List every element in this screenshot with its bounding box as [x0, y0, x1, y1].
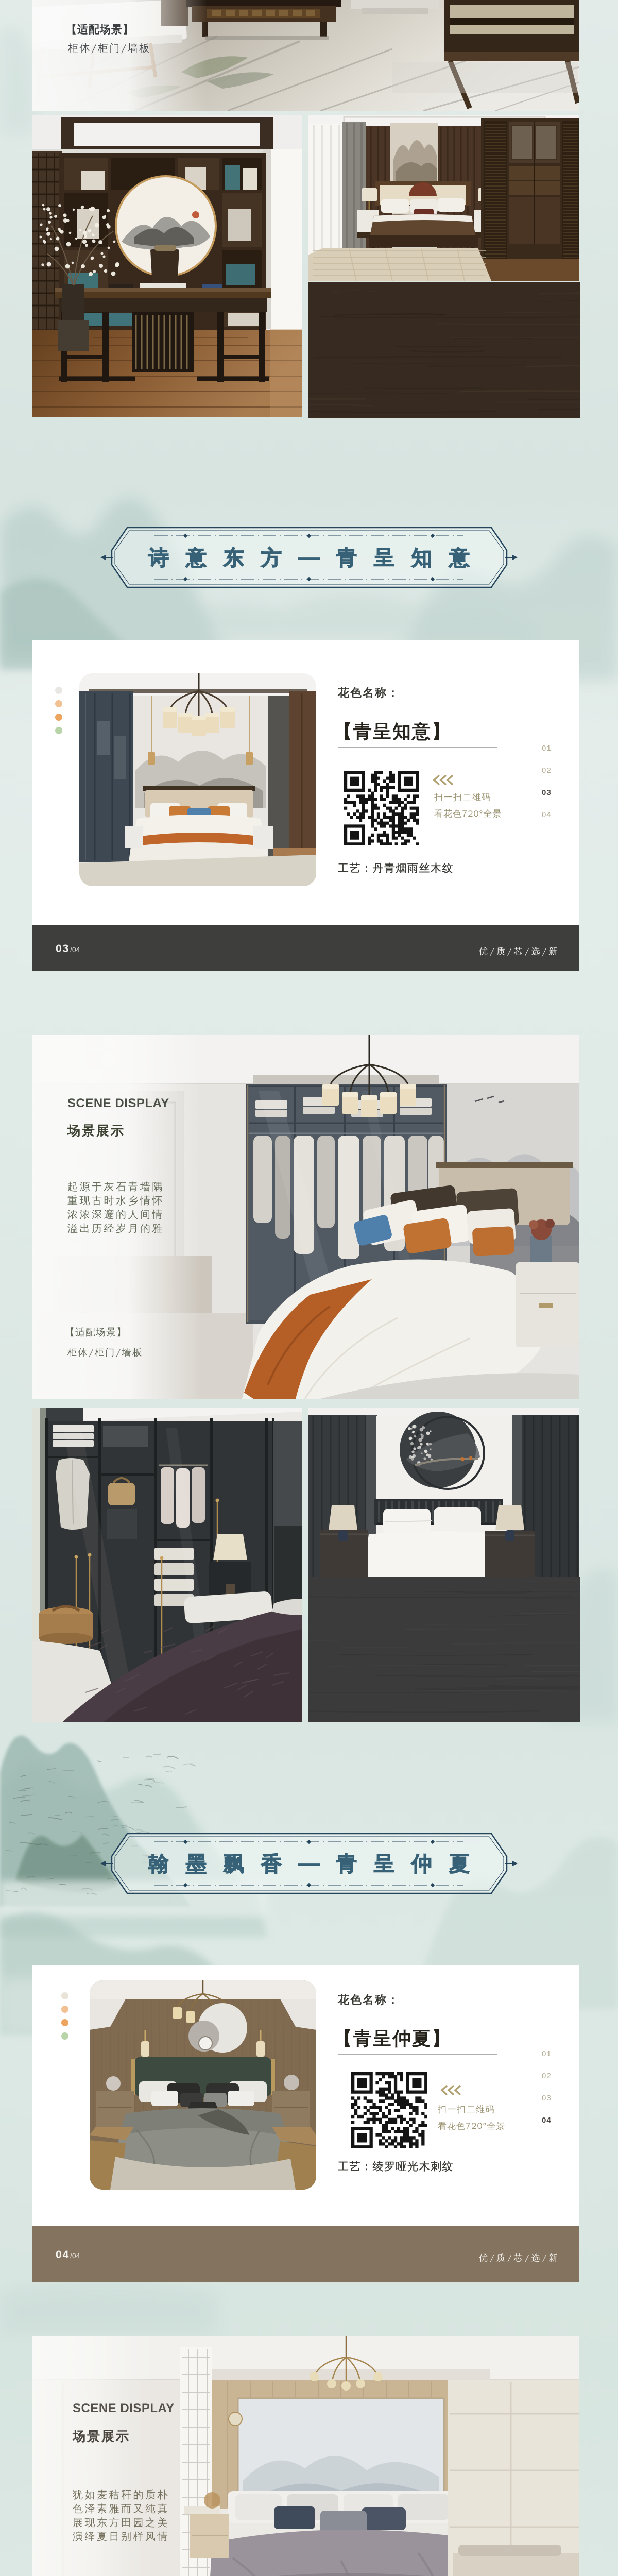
svg-text:03: 03	[56, 943, 70, 955]
svg-text:02: 02	[542, 766, 552, 775]
svg-text:04: 04	[56, 2249, 70, 2261]
svg-text:04: 04	[542, 2116, 552, 2125]
svg-text:03: 03	[542, 2094, 552, 2103]
svg-text:03: 03	[542, 788, 552, 797]
svg-text:01: 01	[542, 744, 552, 753]
svg-text:SCENE DISPLAY: SCENE DISPLAY	[67, 1096, 169, 1110]
svg-text:/04: /04	[70, 2251, 80, 2260]
svg-text:/04: /04	[70, 945, 80, 954]
svg-text:SCENE DISPLAY: SCENE DISPLAY	[73, 2401, 175, 2415]
svg-text:01: 01	[542, 2049, 552, 2058]
svg-text:04: 04	[542, 810, 552, 819]
svg-text:02: 02	[542, 2072, 552, 2080]
